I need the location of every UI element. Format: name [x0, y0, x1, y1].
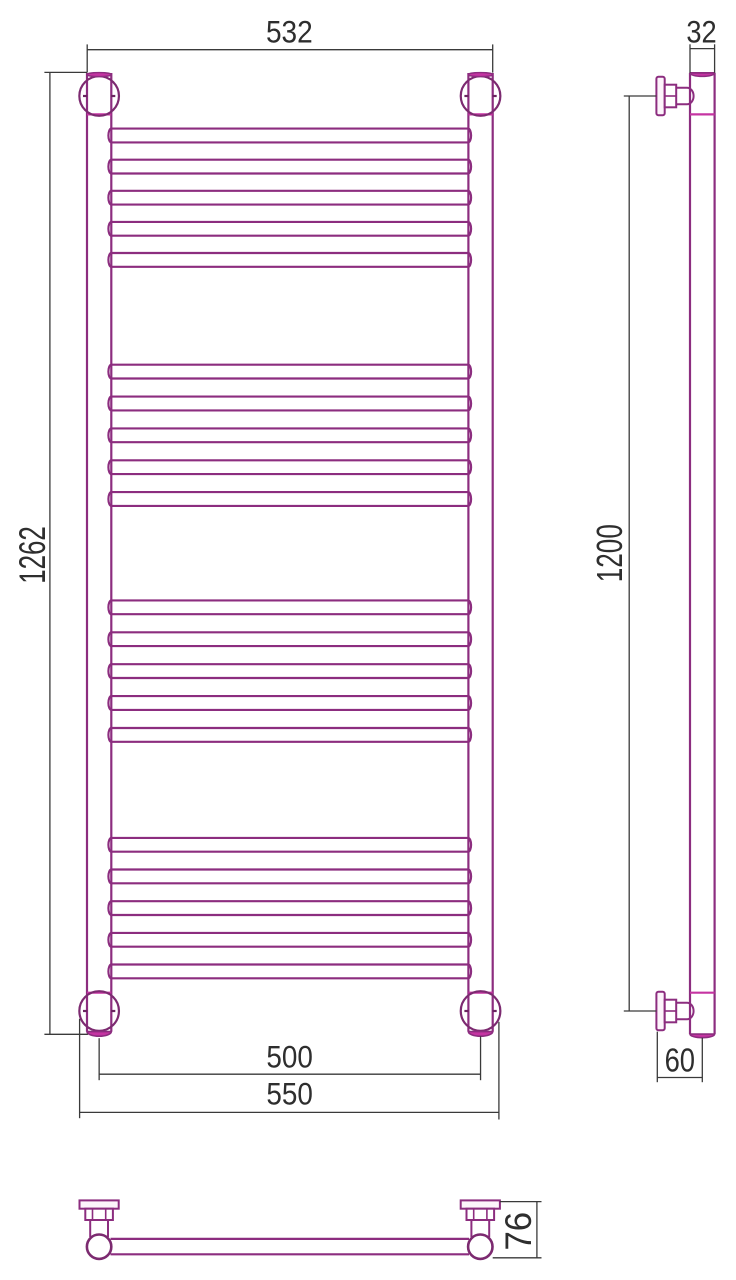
svg-text:550: 550 [266, 1077, 312, 1112]
svg-text:32: 32 [686, 15, 716, 50]
svg-text:1200: 1200 [590, 524, 630, 582]
svg-text:60: 60 [665, 1043, 695, 1079]
svg-text:500: 500 [266, 1040, 312, 1075]
svg-text:1262: 1262 [11, 526, 53, 584]
svg-text:76: 76 [498, 1212, 539, 1251]
svg-text:532: 532 [266, 15, 313, 50]
